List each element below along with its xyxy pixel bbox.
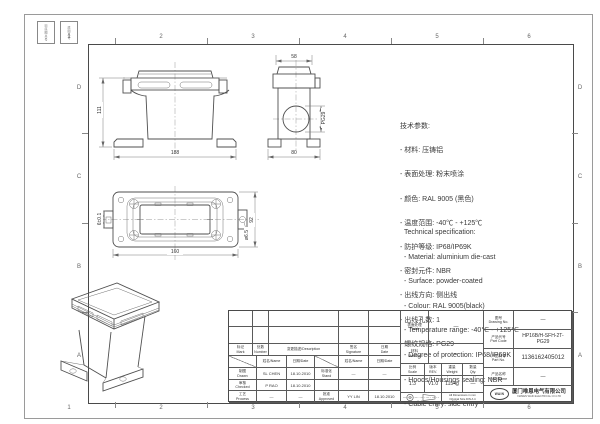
name-subheader-cell: 姓名/Name: [257, 356, 287, 368]
scale-label-cell: 比例Scale: [401, 364, 425, 376]
date-label-en: Date: [381, 350, 389, 354]
zone-number: 2: [156, 405, 166, 411]
scale-label-cn: 比例: [408, 365, 417, 369]
weight-label-cn: 重量: [446, 365, 457, 369]
margin-registry-text: 旧底图总号: [44, 24, 48, 42]
approved-label-en: Approved: [319, 397, 334, 401]
approved-date: 18.10.2010: [369, 391, 401, 403]
number-label-en: Number: [254, 350, 267, 354]
name-subheader-cell: 姓名/Name: [339, 356, 369, 368]
part-name-label-en: Part Name: [490, 377, 507, 381]
title-block: 标记Mark 处数Number 变更描述/Description 签名Signa…: [228, 310, 572, 402]
finish-label-cell: 表面处理Finish: [401, 311, 429, 344]
rev-value: V1.0: [425, 376, 442, 393]
diagonal-cell: [315, 356, 339, 368]
rev-label-en: REV.: [429, 370, 437, 374]
drawing-sheet: 1 2 3 4 5 6 1 2 3 4 5 6 D C B A D C B A …: [0, 0, 600, 424]
date-subheader-cell: 日期/Date: [287, 356, 315, 368]
qty-label-en: Qty.: [469, 370, 476, 374]
dim-side-top: 58: [286, 54, 302, 60]
part-name-label-cell: 产品名称Part Name: [484, 368, 514, 386]
scale-value: 1:3: [401, 376, 425, 393]
zone-number: 6: [524, 34, 534, 40]
zone-number: 1: [64, 405, 74, 411]
tech-spec-cn-item: - 表面处理: 粉末喷涂: [400, 170, 482, 180]
mark-label-en: Mark: [237, 350, 245, 354]
qty-value: —: [463, 376, 484, 393]
zone-number: 6: [524, 405, 534, 411]
rev-label-cell: 版本REV.: [425, 364, 442, 376]
scale-label-en: Scale: [408, 370, 417, 374]
drawing-no-label-cell: 图号Drawing No.: [484, 311, 514, 330]
stand-label-cell: 标准化Stand: [315, 368, 339, 380]
drawing-no-label-en: Drawing No.: [489, 320, 509, 324]
part-no-value: 1136162405012: [514, 349, 573, 368]
margin-registry-box: 底图总号: [60, 21, 78, 44]
weight-value: 1154g: [442, 376, 463, 393]
dim-top-right: 92: [249, 213, 255, 227]
drawn-name: SL CHEN: [257, 368, 287, 380]
signature-label-en: Signature: [346, 350, 361, 354]
zone-number: 3: [248, 405, 258, 411]
material-label-en: Material: [408, 354, 421, 358]
weight-label-en: Weight: [446, 370, 457, 374]
dim-top-hole: ø6.5: [244, 227, 250, 243]
note-size: Original Size DIN A 4: [449, 398, 476, 402]
qty-label-cn: 数量: [469, 365, 476, 369]
signature-header-cell: 签名Signature: [339, 344, 369, 356]
dim-top-width: 160: [167, 249, 183, 255]
description-header-cell: 变更描述/Description: [269, 344, 339, 356]
drawn-date: 18.10.2010: [287, 368, 315, 380]
side-view-drawing: [265, 52, 340, 165]
zone-letter: B: [575, 264, 585, 270]
zone-number: 5: [432, 34, 442, 40]
first-angle-projection-icon: [402, 393, 441, 402]
zone-letter: B: [74, 264, 84, 270]
company-name-en: XIAMEN WAIN ELECTRICAL CO.LTD: [512, 395, 566, 398]
drawn-label-en: Drawn: [237, 374, 247, 378]
dim-top-left: 6±0.1: [97, 209, 103, 229]
iso-view-drawing: [45, 275, 170, 403]
drawn-label-cell: 制图Drawn: [229, 368, 257, 380]
tech-spec-cn-item: - 材料: 压铸铝: [400, 146, 482, 156]
stand-label-cn: 标准化: [321, 369, 332, 373]
checked-name: P RAO: [257, 380, 287, 391]
weight-label-cell: 重量Weight: [442, 364, 463, 376]
part-name-value: —: [514, 368, 573, 386]
process-date: —: [287, 391, 315, 403]
dim-front-height: 111: [97, 102, 103, 118]
zone-letter: D: [74, 85, 84, 91]
checked-label-cell: 审核Checked: [229, 380, 257, 391]
part-code-label-cell: 产品代号Part Code: [484, 330, 514, 349]
margin-registry-box: 旧底图总号: [37, 21, 55, 44]
tech-spec-en-item: - Surface: powder-coated: [404, 277, 519, 288]
material-value: —: [429, 344, 484, 364]
qty-label-cell: 数量Qty.: [463, 364, 484, 376]
date-label-cn: 日期: [381, 345, 389, 349]
zone-number: 4: [340, 34, 350, 40]
zone-letter: C: [575, 174, 585, 180]
zone-number: 2: [156, 34, 166, 40]
mark-label-cn: 标记: [237, 345, 245, 349]
zone-letter: D: [575, 85, 585, 91]
approved-label-cell: 批准Approved: [315, 391, 339, 403]
wain-logo: WAIN: [490, 388, 509, 400]
finish-value: —: [429, 311, 484, 344]
tech-spec-cn-title: 技术参数:: [400, 122, 482, 132]
part-no-label-cell: 产品料号Part No.: [484, 349, 514, 368]
mark-header-cell: 标记Mark: [229, 344, 253, 356]
material-label-cell: 材料Material: [401, 344, 429, 364]
dimension-notes-cell: All Dimensions in mmOriginal Size DIN A …: [442, 393, 484, 403]
company-cell: WAIN 厦门唯恩电气有限公司 XIAMEN WAIN ELECTRICAL C…: [484, 386, 573, 403]
process-label-en: Process: [236, 397, 249, 401]
zone-letter: C: [74, 174, 84, 180]
tech-spec-en-title: Technical specification:: [404, 228, 519, 239]
date-subheader-cell: 日期/Date: [369, 356, 401, 368]
process-label-cell: 工艺Process: [229, 391, 257, 403]
finish-label-en: Finish: [407, 327, 421, 331]
stand-date: —: [369, 368, 401, 380]
diagonal-cell: [229, 356, 257, 368]
part-no-label-en: Part No.: [491, 358, 505, 362]
approved-name: YY LIN: [339, 391, 369, 403]
rev-label-cn: 版本: [429, 365, 437, 369]
dim-side-bottom: 80: [286, 150, 302, 156]
tech-spec-cn-item: - 颜色: RAL 9005 (黑色): [400, 195, 482, 205]
stand-name: —: [339, 368, 369, 380]
checked-label-en: Checked: [235, 385, 249, 389]
part-code-label-en: Part Code: [490, 339, 506, 343]
projection-symbol-cell: [401, 393, 442, 403]
zone-number: 3: [248, 34, 258, 40]
margin-registry-text: 底图总号: [67, 26, 71, 40]
stand-label-en: Stand: [321, 374, 332, 378]
process-name: —: [257, 391, 287, 403]
zone-number: 4: [340, 405, 350, 411]
part-name-label-cn: 产品名称: [490, 372, 507, 376]
number-header-cell: 处数Number: [253, 344, 269, 356]
tech-spec-en-item: - Material: aluminium die-cast: [404, 253, 519, 264]
drawing-no-value: —: [514, 311, 573, 330]
date-header-cell: 日期Date: [369, 344, 401, 356]
dim-front-width: 188: [167, 150, 183, 156]
zone-letter: A: [575, 353, 585, 359]
checked-date: 18.10.2010: [287, 380, 315, 391]
dim-side-thread: PG29: [321, 108, 327, 128]
part-code-value: HP16B/H-SFH-2T-PG29: [514, 330, 573, 349]
